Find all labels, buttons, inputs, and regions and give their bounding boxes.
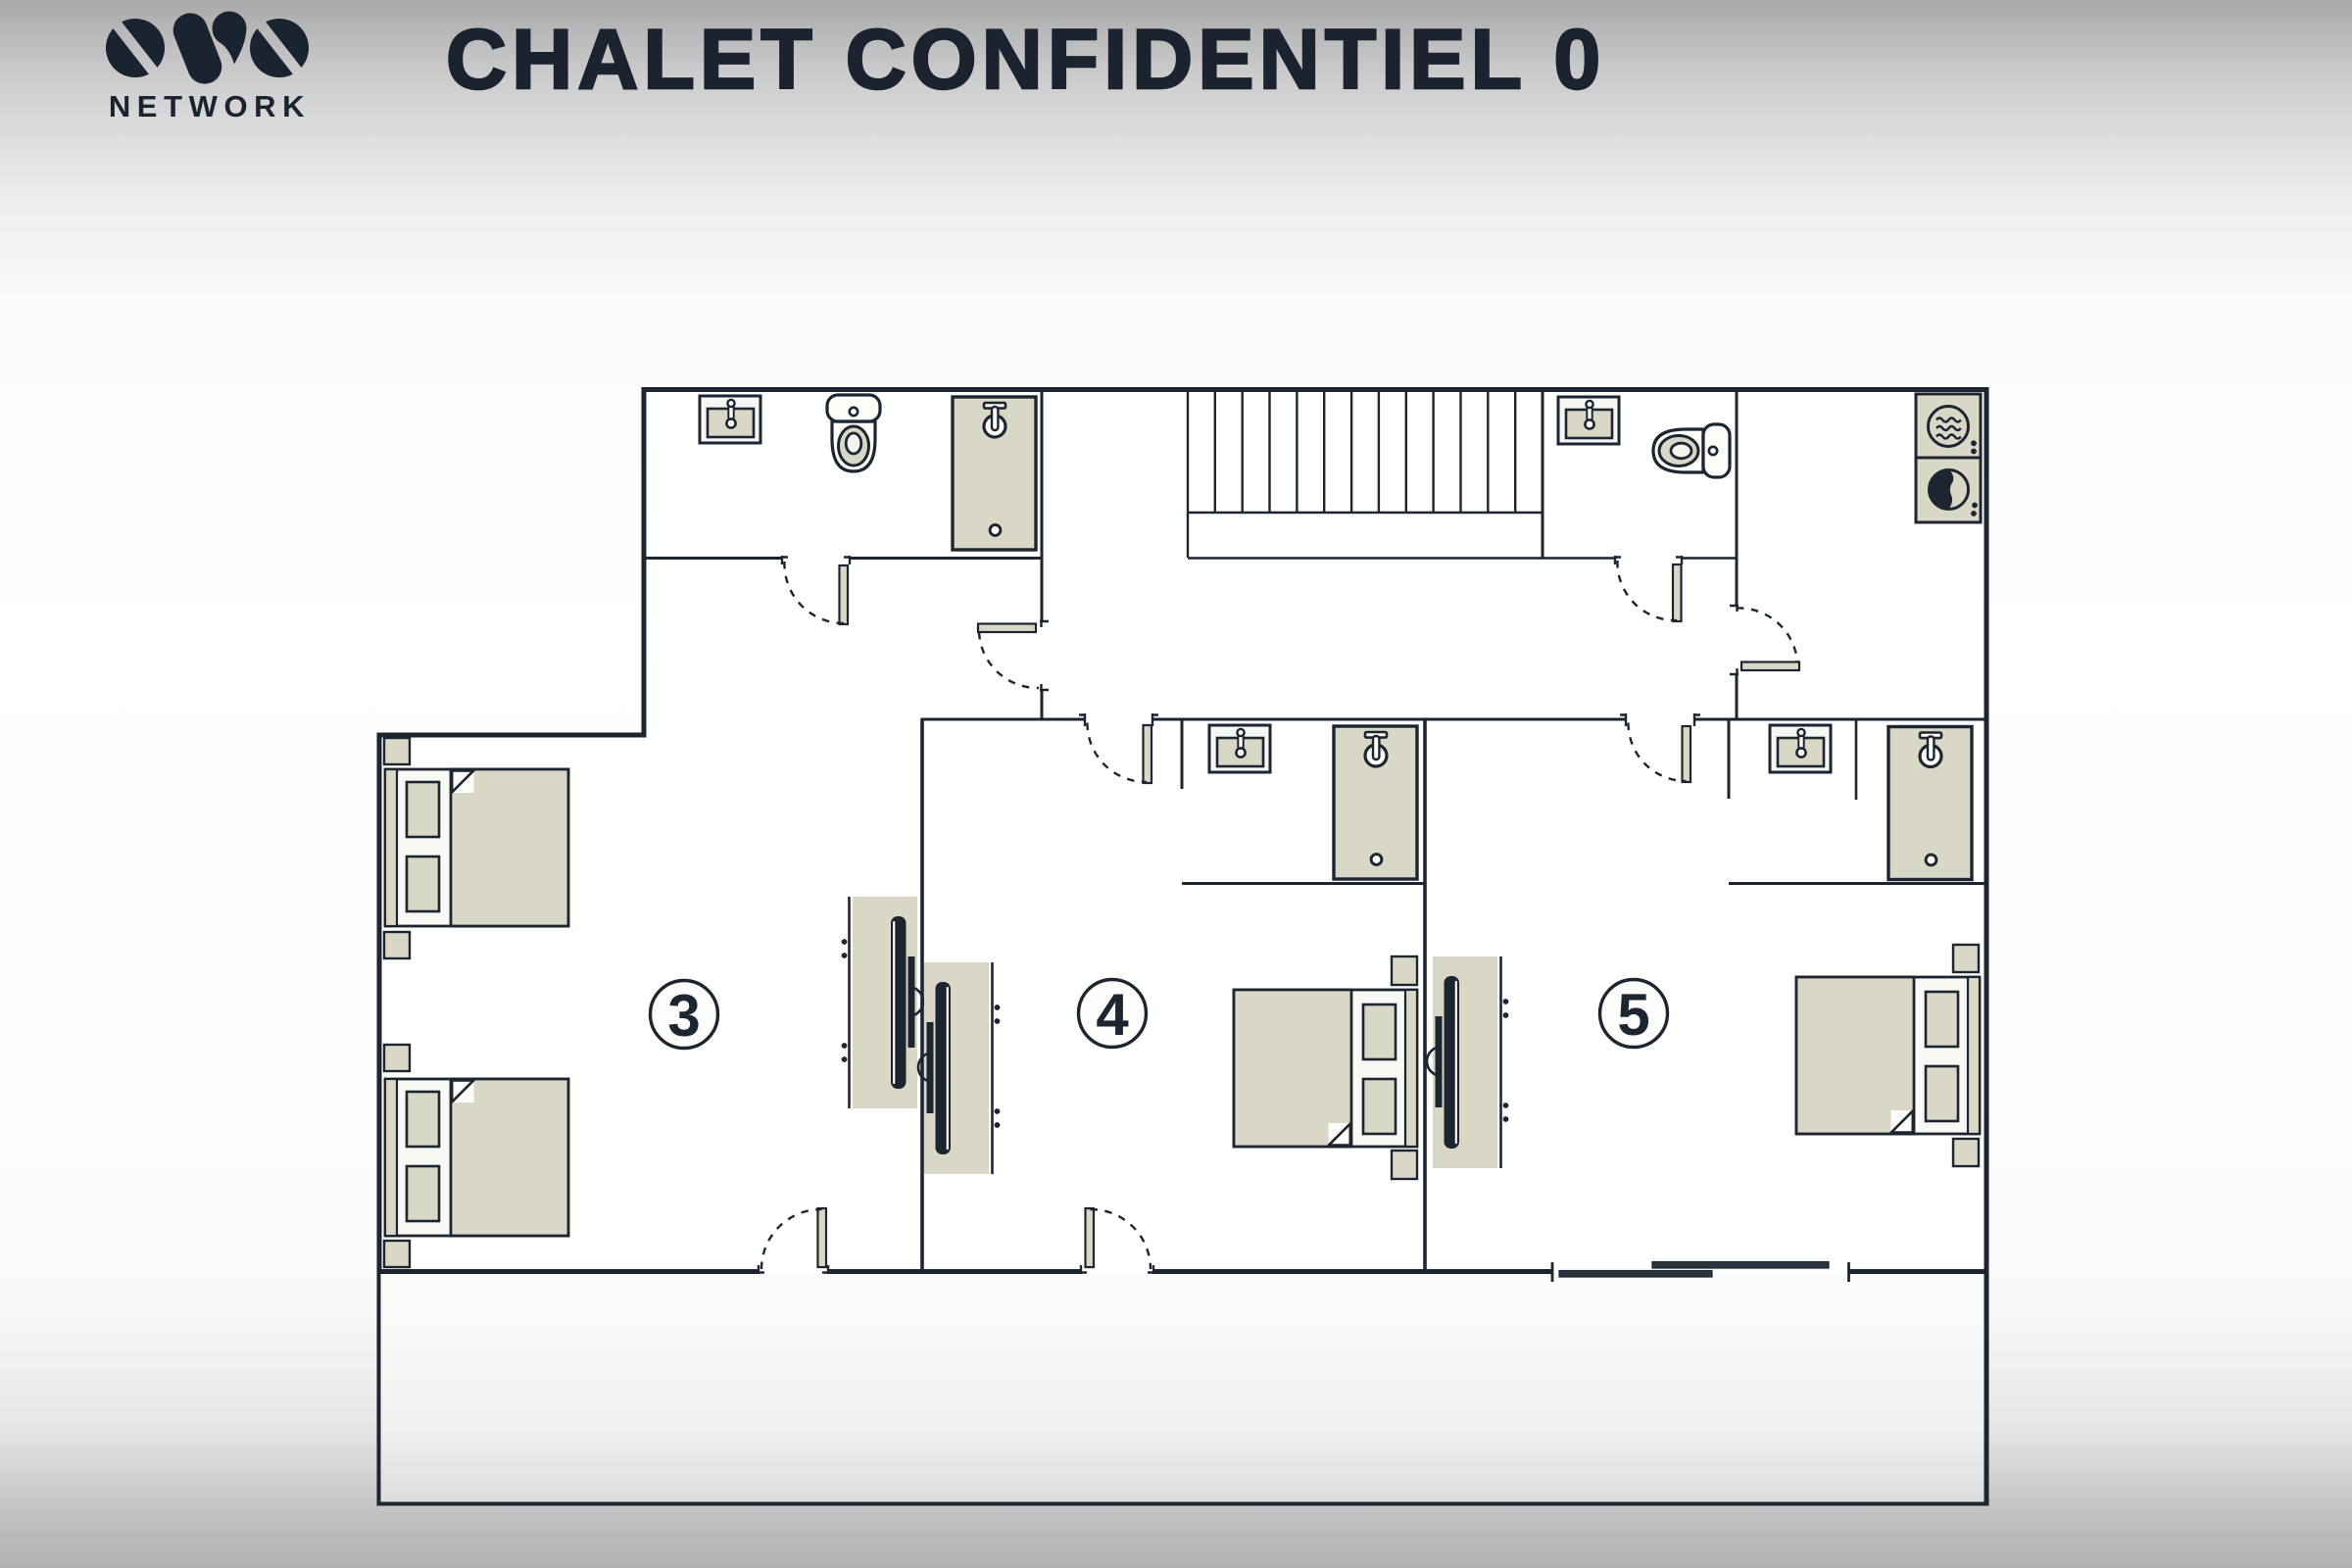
svg-text:CHALET CONFIDENTIEL 0: CHALET CONFIDENTIEL 0 [446, 13, 1605, 107]
svg-text:5: 5 [1617, 982, 1649, 1048]
svg-text:NETWORK: NETWORK [109, 89, 311, 123]
svg-text:4: 4 [1096, 982, 1129, 1048]
svg-text:3: 3 [667, 983, 700, 1049]
